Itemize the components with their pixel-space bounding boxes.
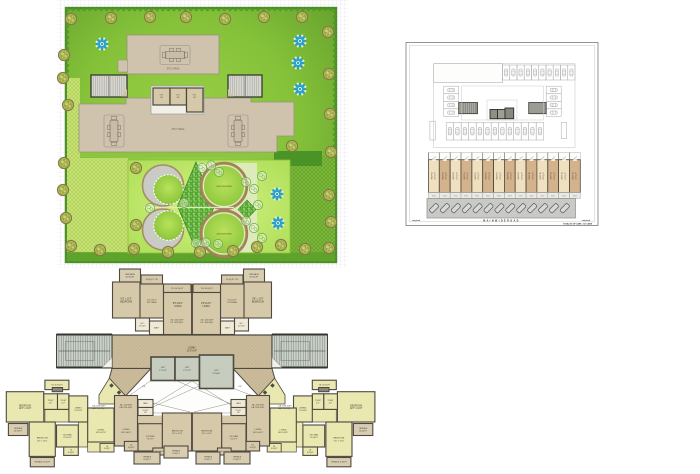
svg-text:LIVING: LIVING [97, 429, 104, 431]
svg-text:7’1"x7’1": 7’1"x7’1" [159, 370, 167, 372]
svg-text:BEDROOM: BEDROOM [19, 405, 31, 407]
svg-text:10’0"x10’0": 10’0"x10’0" [253, 432, 264, 434]
svg-text:225 SQ.FT: 225 SQ.FT [522, 172, 524, 179]
svg-text:4’x7’: 4’x7’ [316, 402, 320, 404]
svg-text:225 SQ.FT: 225 SQ.FT [500, 172, 502, 179]
svg-text:4’2"x3’2": 4’2"x3’2" [139, 325, 146, 327]
svg-text:SHOP 13: SHOP 13 [562, 172, 564, 179]
svg-text:9'X12': 9'X12' [562, 195, 567, 197]
svg-text:BEDROOM: BEDROOM [120, 301, 132, 303]
svg-text:10 SQ.FT: 10 SQ.FT [233, 459, 240, 461]
svg-text:10 SQ.FT: 10 SQ.FT [204, 459, 211, 461]
svg-text:9'X12': 9'X12' [529, 195, 534, 197]
svg-text:LIVING: LIVING [280, 429, 287, 431]
svg-text:4’0": 4’0" [238, 386, 242, 388]
svg-text:BEDROOM: BEDROOM [252, 301, 264, 303]
svg-text:TOTAL NO OF CARS : 111 CARS: TOTAL NO OF CARS : 111 CARS [563, 223, 593, 226]
svg-text:4’x7’: 4’x7’ [329, 402, 333, 404]
svg-text:TERRACE 25 SQ.FT: TERRACE 25 SQ.FT [34, 461, 50, 464]
svg-text:STILT AREA: STILT AREA [167, 68, 180, 71]
svg-text:10’0"x12’0": 10’0"x12’0" [278, 432, 289, 434]
svg-text:STILT AREA: STILT AREA [172, 128, 185, 131]
svg-text:LIVING: LIVING [255, 429, 262, 431]
svg-text:7’0"x10’0": 7’0"x10’0" [74, 410, 83, 412]
svg-text:LIFT: LIFT [193, 95, 196, 97]
svg-text:30 SQ.FT: 30 SQ.FT [128, 447, 135, 449]
svg-text:7’0"x10’7": 7’0"x10’7" [147, 299, 157, 301]
svg-text:10 SQ.FT. T.B.: 10 SQ.FT. T.B. [146, 279, 159, 281]
svg-text:9'X12': 9'X12' [540, 195, 545, 197]
svg-text:10’0"x10’0": 10’0"x10’0" [121, 432, 132, 434]
svg-text:4’0": 4’0" [142, 386, 146, 388]
svg-text:entry/exit: entry/exit [412, 219, 421, 222]
svg-text:SHOP 11: SHOP 11 [540, 172, 542, 179]
svg-text:7’0"x10’7": 7’0"x10’7" [227, 299, 237, 301]
svg-text:BEDROOM: BEDROOM [334, 438, 345, 440]
svg-text:UP +100 SQFT: UP +100 SQFT [171, 322, 185, 324]
svg-text:DA-1 100 SQFT: DA-1 100 SQFT [252, 406, 266, 409]
svg-text:SHOP 12: SHOP 12 [551, 172, 553, 179]
svg-text:SHOP 03: SHOP 03 [453, 172, 455, 179]
svg-text:40 SQ.FT: 40 SQ.FT [14, 430, 23, 432]
svg-text:LIFT: LIFT [161, 367, 166, 369]
svg-text:entry/exit: entry/exit [582, 219, 591, 222]
svg-text:30 SQ.FT: 30 SQ.FT [250, 447, 257, 449]
svg-text:225 SQ.FT: 225 SQ.FT [543, 172, 545, 179]
svg-text:BEDROOM: BEDROOM [172, 430, 183, 432]
svg-text:225 SQ.FT: 225 SQ.FT [489, 172, 491, 179]
svg-text:225 SQ.FT: 225 SQ.FT [467, 172, 469, 179]
svg-text:LIFT: LIFT [214, 370, 219, 372]
svg-text:10 SQ.FT. T.B.: 10 SQ.FT. T.B. [226, 279, 239, 281]
svg-text:T.B. 30 SQ.FT: T.B. 30 SQ.FT [171, 288, 184, 290]
svg-text:225 SQ.FT: 225 SQ.FT [446, 172, 448, 179]
svg-text:7’0"x10’0": 7’0"x10’0" [63, 437, 72, 439]
svg-text:SHOP 05: SHOP 05 [475, 172, 477, 179]
svg-text:SHOP 08: SHOP 08 [507, 172, 509, 179]
svg-text:TERRACE 25 SQ.FT: TERRACE 25 SQ.FT [331, 461, 347, 464]
svg-text:9'X12': 9'X12' [432, 195, 437, 197]
svg-text:9’5"x14’0": 9’5"x14’0" [173, 303, 183, 305]
svg-text:DA-1 1170 SQFT: DA-1 1170 SQFT [278, 407, 293, 410]
svg-text:9'X12': 9'X12' [497, 195, 502, 197]
svg-text:LIFT: LIFT [160, 95, 163, 97]
svg-text:T.B. 30 SQ.FT: T.B. 30 SQ.FT [201, 288, 214, 290]
svg-text:TERRACE: TERRACE [249, 273, 260, 276]
svg-text:DA-1 1170 SQFT: DA-1 1170 SQFT [92, 407, 107, 410]
svg-text:9’0" x 11’0": 9’0" x 11’0" [172, 433, 182, 435]
svg-text:9’0"x8’0": 9’0"x8’0" [212, 373, 220, 375]
svg-text:225 SQ.FT: 225 SQ.FT [456, 172, 458, 179]
svg-text:SHOP 09: SHOP 09 [518, 172, 520, 179]
svg-text:10’0"x12’0": 10’0"x12’0" [96, 432, 107, 434]
svg-text:SHOP 07: SHOP 07 [497, 172, 499, 179]
svg-text:4’2"x3’2": 4’2"x3’2" [238, 325, 245, 327]
svg-text:LANDSCAPE AREA: LANDSCAPE AREA [216, 185, 232, 188]
svg-text:SHOP 06: SHOP 06 [486, 172, 488, 179]
svg-text:40 SQ.FT: 40 SQ.FT [359, 430, 368, 432]
svg-text:4’x7’: 4’x7’ [49, 402, 53, 404]
svg-text:SHOP 02: SHOP 02 [442, 172, 444, 179]
svg-text:9'X12': 9'X12' [486, 195, 491, 197]
svg-text:M A I N W I D E R O A D: M A I N W I D E R O A D [483, 220, 519, 223]
svg-text:25’0"x4’3": 25’0"x4’3" [187, 350, 197, 352]
svg-text:9'X12': 9'X12' [475, 195, 480, 197]
svg-text:30 SQ.FT: 30 SQ.FT [104, 448, 111, 450]
svg-text:SHOP 01: SHOP 01 [431, 172, 433, 179]
svg-text:9’2"x3’1": 9’2"x3’1" [143, 410, 149, 412]
svg-text:30 SQ.FT: 30 SQ.FT [68, 452, 75, 454]
svg-text:UP +100 SQFT: UP +100 SQFT [201, 322, 215, 324]
svg-text:LIVING: LIVING [123, 429, 130, 431]
svg-text:12’0" x 10’0": 12’0" x 10’0" [19, 408, 32, 410]
svg-text:KITCHEN: KITCHEN [147, 302, 157, 304]
svg-text:30 SQ.FT: 30 SQ.FT [271, 448, 278, 450]
svg-text:225 SQ.FT: 225 SQ.FT [435, 172, 437, 179]
svg-text:4X6: 4X6 [177, 97, 180, 99]
svg-text:9'X12': 9'X12' [443, 195, 448, 197]
svg-text:30 SQ.FT: 30 SQ.FT [307, 452, 314, 454]
svg-text:7’0"x7’7": 7’0"x7’7" [230, 438, 238, 440]
svg-text:LOBBY: LOBBY [188, 348, 196, 350]
svg-text:LIVING: LIVING [202, 306, 210, 308]
svg-text:7’0"x10’0": 7’0"x10’0" [310, 437, 319, 439]
svg-text:7’1"x7’1": 7’1"x7’1" [183, 370, 191, 372]
svg-text:9’0" x 11’0": 9’0" x 11’0" [202, 433, 212, 435]
svg-text:12’0" x 10’0": 12’0" x 10’0" [350, 408, 363, 410]
svg-text:225 SQ.FT: 225 SQ.FT [576, 172, 578, 179]
svg-text:9'X12': 9'X12' [464, 195, 469, 197]
svg-text:TERRACE: TERRACE [125, 273, 136, 276]
svg-text:50 SQ.FT: 50 SQ.FT [125, 277, 135, 279]
svg-text:LANDSCAPE AREA: LANDSCAPE AREA [216, 233, 232, 236]
svg-text:LIFT: LIFT [176, 95, 179, 97]
svg-text:50 SQ.FT: 50 SQ.FT [249, 277, 259, 279]
svg-text:9’5"x14’0": 9’5"x14’0" [201, 303, 211, 305]
svg-text:4’x7’: 4’x7’ [61, 402, 65, 404]
svg-text:9'X12': 9'X12' [454, 195, 459, 197]
svg-text:225 SQ.FT: 225 SQ.FT [511, 172, 513, 179]
svg-text:10 SQ.FT: 10 SQ.FT [143, 459, 150, 461]
svg-text:225 SQ.FT: 225 SQ.FT [554, 172, 556, 179]
svg-text:BATH: BATH [154, 326, 159, 329]
svg-text:9'X12': 9'X12' [508, 195, 513, 197]
svg-text:9’6" x 11’0": 9’6" x 11’0" [121, 298, 132, 300]
svg-text:9'X12': 9'X12' [519, 195, 524, 197]
svg-text:LIVING: LIVING [174, 306, 182, 308]
svg-text:BEDROOM: BEDROOM [350, 405, 362, 407]
svg-text:BATH: BATH [225, 326, 230, 329]
svg-text:KITCHEN: KITCHEN [227, 302, 237, 304]
svg-text:10 SQ.FT: 10 SQ.FT [172, 453, 179, 455]
svg-text:9’0" x 11’0": 9’0" x 11’0" [334, 440, 344, 442]
svg-text:225 SQ.FT: 225 SQ.FT [565, 172, 567, 179]
svg-text:T.B. 30 SQ.FT: T.B. 30 SQ.FT [319, 385, 331, 387]
svg-text:4X6: 4X6 [160, 97, 163, 99]
svg-text:6X6: 6X6 [193, 97, 196, 99]
svg-text:LIFT: LIFT [185, 367, 190, 369]
svg-text:9'X12': 9'X12' [551, 195, 556, 197]
svg-text:9’0" x 11’0": 9’0" x 11’0" [37, 440, 47, 442]
svg-text:SHOP 10: SHOP 10 [529, 172, 531, 179]
svg-text:9’6" x 11’0": 9’6" x 11’0" [252, 298, 263, 300]
svg-text:7’0"x10’0": 7’0"x10’0" [299, 410, 308, 412]
svg-text:SHOP 04: SHOP 04 [464, 172, 466, 179]
svg-text:225 SQ.FT: 225 SQ.FT [532, 172, 534, 179]
svg-text:BEDROOM: BEDROOM [37, 438, 48, 440]
svg-text:T.B. 30 SQ.FT: T.B. 30 SQ.FT [51, 385, 63, 387]
svg-text:BEDROOM: BEDROOM [201, 430, 212, 432]
svg-text:9’2"x3’1": 9’2"x3’1" [236, 410, 242, 412]
svg-text:7’0"x7’7": 7’0"x7’7" [147, 438, 155, 440]
svg-text:9'X12': 9'X12' [573, 195, 578, 197]
svg-text:225 SQ.FT: 225 SQ.FT [478, 172, 480, 179]
svg-text:SHOP 14: SHOP 14 [572, 172, 574, 179]
svg-text:DA-1 100 SQFT: DA-1 100 SQFT [120, 406, 134, 409]
